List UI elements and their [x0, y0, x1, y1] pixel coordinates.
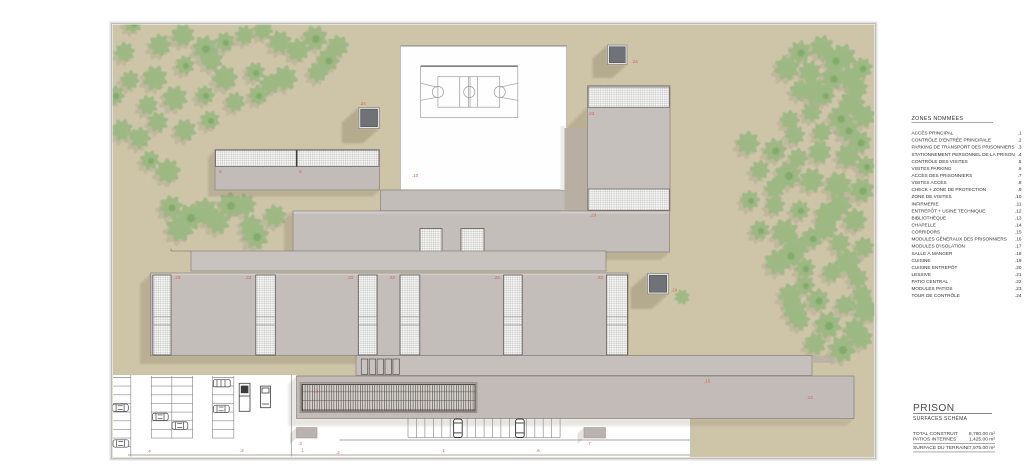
svg-text:.10: .10	[1015, 194, 1022, 199]
svg-text:ACCÈS DES PRISONNIERS: ACCÈS DES PRISONNIERS	[912, 172, 973, 178]
svg-text:.5: .5	[298, 169, 302, 174]
svg-text:INFIRMERIE: INFIRMERIE	[912, 201, 939, 206]
svg-text:.14: .14	[807, 395, 814, 400]
svg-text:.4: .4	[147, 449, 151, 454]
svg-text:.21: .21	[1015, 272, 1022, 277]
svg-text:ENTREPÔT + USINE TECHNIQUE: ENTREPÔT + USINE TECHNIQUE	[912, 207, 986, 213]
svg-text:.23: .23	[597, 275, 604, 280]
svg-text:.23: .23	[174, 275, 181, 280]
svg-text:BIBLIOTHÈQUE: BIBLIOTHÈQUE	[912, 214, 947, 220]
svg-text:.5: .5	[1018, 159, 1022, 164]
svg-text:.23: .23	[245, 275, 252, 280]
svg-text:CHAPELLE: CHAPELLE	[912, 223, 937, 228]
svg-text:.23: .23	[588, 111, 595, 116]
svg-text:.23: .23	[347, 275, 354, 280]
svg-text:ZONE DE VISITES: ZONE DE VISITES	[912, 194, 952, 199]
svg-text:TOUR DE CONTRÔLE: TOUR DE CONTRÔLE	[912, 292, 960, 298]
svg-text:.6: .6	[536, 448, 540, 453]
svg-text:.1: .1	[441, 448, 445, 453]
svg-text:MODULES GÉNÉRAUX DES PRISONNIE: MODULES GÉNÉRAUX DES PRISONNIERS	[912, 236, 1007, 242]
svg-text:CUISINE: CUISINE	[912, 258, 931, 263]
svg-text:.19: .19	[1015, 258, 1022, 263]
svg-text:VISITES ACCÈS: VISITES ACCÈS	[912, 179, 947, 185]
svg-text:PARKING DE TRANSPORT DES PRISO: PARKING DE TRANSPORT DES PRISONNIERS	[912, 145, 1015, 150]
svg-text:.2: .2	[240, 448, 244, 453]
svg-text:.22: .22	[1015, 279, 1022, 284]
svg-text:.17: .17	[1015, 244, 1022, 249]
svg-text:CONTRÔLE D'ENTRÉE PRINCIPALE: CONTRÔLE D'ENTRÉE PRINCIPALE	[912, 137, 991, 143]
svg-text:SURFACES SCHÉMA: SURFACES SCHÉMA	[913, 415, 968, 422]
svg-text:.24: .24	[1015, 293, 1022, 298]
svg-text:.3: .3	[315, 389, 319, 394]
svg-text:.7: .7	[1018, 173, 1022, 178]
svg-text:.10: .10	[412, 173, 419, 178]
svg-text:MODULES D'ISOLATION: MODULES D'ISOLATION	[912, 244, 965, 249]
svg-text:CUISINE ENTREPÔT: CUISINE ENTREPÔT	[912, 264, 958, 270]
svg-text:.23: .23	[389, 275, 396, 280]
svg-text:PRISON: PRISON	[913, 403, 954, 414]
svg-text:.16: .16	[1015, 237, 1022, 242]
svg-text:MODULES PATIOS: MODULES PATIOS	[912, 286, 953, 291]
svg-text:.15: .15	[1015, 230, 1022, 235]
svg-text:.13: .13	[1015, 215, 1022, 220]
svg-text:.9: .9	[1018, 187, 1022, 192]
svg-text:.6: .6	[1018, 166, 1022, 171]
svg-text:SALLE À MANGER: SALLE À MANGER	[912, 250, 954, 256]
svg-text:.3: .3	[1018, 145, 1022, 150]
svg-text:.23: .23	[590, 213, 597, 218]
svg-text:.3: .3	[298, 441, 302, 446]
svg-text:.15: .15	[704, 379, 711, 384]
svg-text:.14: .14	[1015, 223, 1022, 228]
svg-text:ZONES NOMMÉES: ZONES NOMMÉES	[912, 115, 964, 122]
svg-text:PATIOS INTERNES: PATIOS INTERNES	[913, 437, 957, 443]
svg-text:27,975.00 m²: 27,975.00 m²	[966, 445, 995, 451]
svg-text:1,425.00 m²: 1,425.00 m²	[969, 437, 995, 443]
svg-text:.4: .4	[1018, 152, 1022, 157]
svg-text:.8: .8	[1018, 180, 1022, 185]
svg-text:LESSIVE: LESSIVE	[912, 272, 932, 277]
svg-text:TOTAL CONSTRUIT: TOTAL CONSTRUIT	[913, 431, 958, 437]
svg-text:.7: .7	[587, 441, 591, 446]
svg-text:SURFACE DU TERRAIN: SURFACE DU TERRAIN	[913, 445, 968, 451]
svg-text:.23: .23	[494, 275, 501, 280]
svg-text:ACCÈS PRINCIPAL: ACCÈS PRINCIPAL	[912, 130, 954, 136]
svg-text:.24: .24	[632, 59, 639, 64]
svg-text:.2: .2	[1018, 138, 1022, 143]
svg-text:.24: .24	[671, 288, 678, 293]
svg-text:8,780.00 m²: 8,780.00 m²	[969, 431, 995, 437]
svg-text:CORRIDORS: CORRIDORS	[912, 230, 941, 235]
svg-text:PATIO CENTRAL: PATIO CENTRAL	[912, 279, 949, 284]
svg-text:.18: .18	[1015, 251, 1022, 256]
svg-text:CHECK + ZONE DE PROTECTION: CHECK + ZONE DE PROTECTION	[912, 187, 987, 192]
svg-text:.5: .5	[218, 169, 222, 174]
svg-text:CONTRÔLE DES VISITES: CONTRÔLE DES VISITES	[912, 158, 968, 164]
svg-text:.1: .1	[300, 448, 304, 453]
svg-text:.24: .24	[360, 101, 367, 106]
svg-text:.2: .2	[336, 450, 340, 455]
svg-text:VISITES PARKING: VISITES PARKING	[912, 166, 952, 171]
svg-text:.1: .1	[1018, 131, 1022, 136]
svg-text:.20: .20	[1015, 265, 1022, 270]
svg-text:.12: .12	[1015, 208, 1022, 213]
svg-text:STATIONNEMENT PERSONNEL DE LA: STATIONNEMENT PERSONNEL DE LA PRISON	[912, 152, 1015, 157]
svg-text:.11: .11	[1015, 201, 1022, 206]
svg-text:.23: .23	[1015, 286, 1022, 291]
